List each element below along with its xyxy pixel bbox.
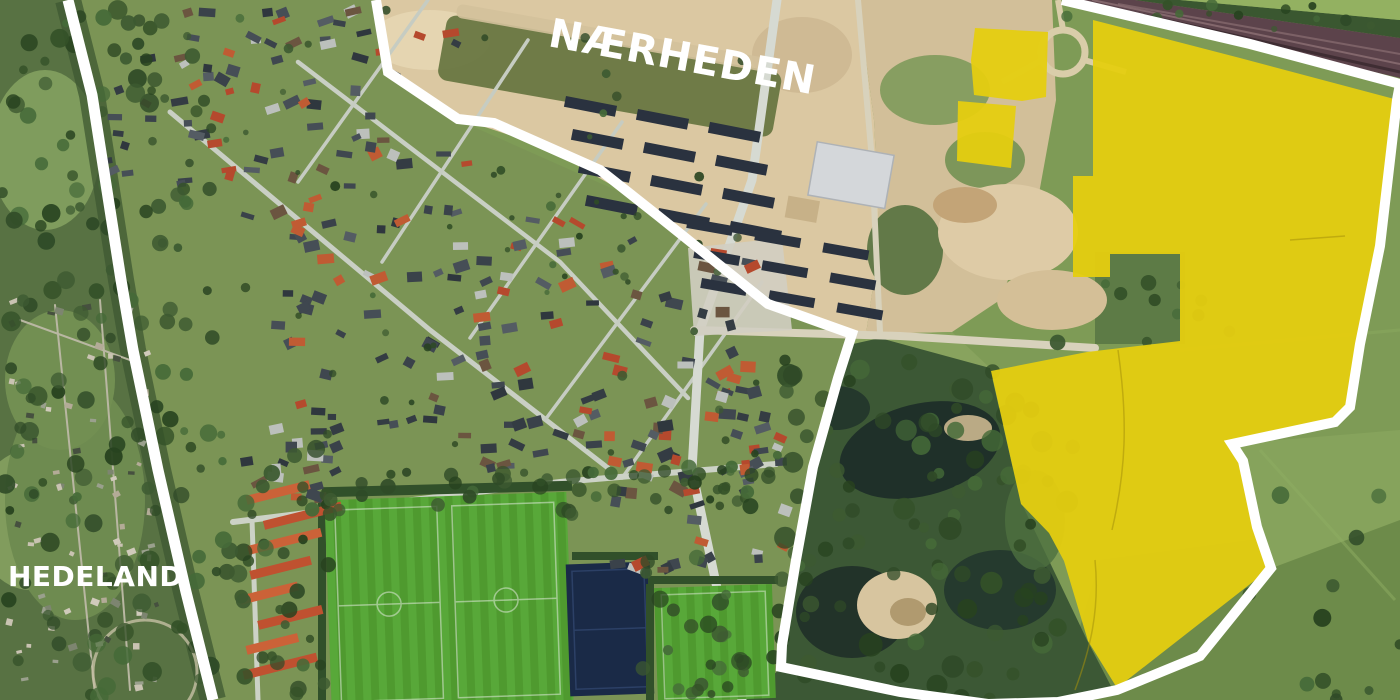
aerial-map: NÆRHEDEN HEDELAND: [0, 0, 1400, 700]
label-hedeland: HEDELAND: [8, 560, 183, 593]
screenshot-root: NÆRHEDEN HEDELAND: [0, 0, 1400, 700]
highlight-parcel-north-a: [971, 28, 1048, 101]
highlight-parcel-north-b: [957, 101, 1016, 168]
